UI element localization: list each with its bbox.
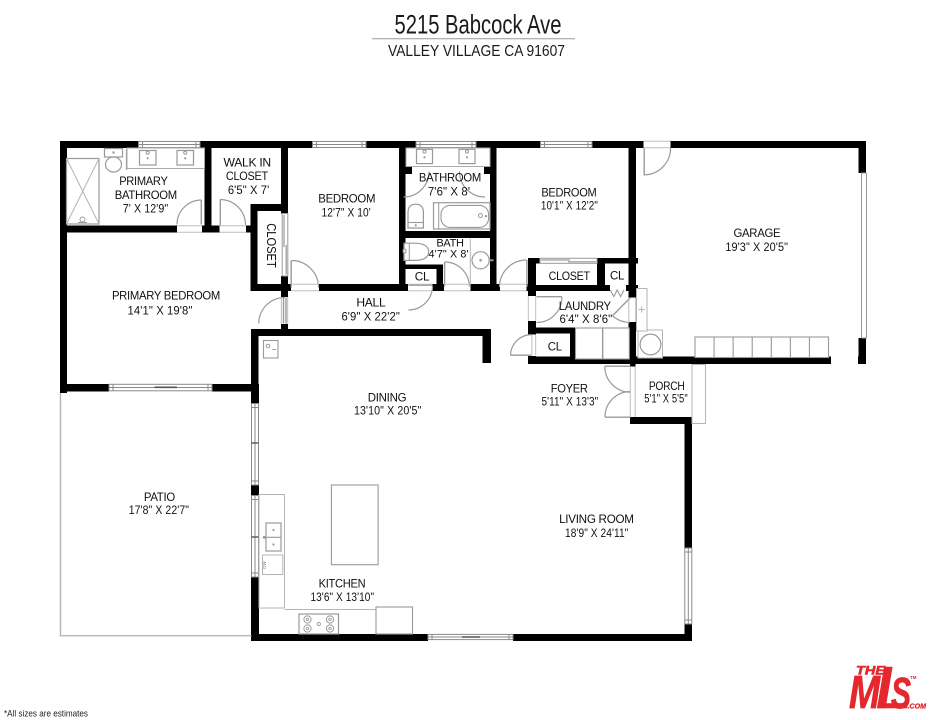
svg-text:BEDROOM: BEDROOM (318, 192, 375, 206)
svg-text:5'1" X 5'5": 5'1" X 5'5" (644, 393, 688, 405)
svg-text:S: S (891, 669, 911, 718)
svg-text:KITCHEN: KITCHEN (319, 577, 366, 591)
svg-text:BEDROOM: BEDROOM (541, 185, 596, 199)
svg-text:19'3" X 20'5": 19'3" X 20'5" (725, 242, 788, 254)
svg-text:5215 Babcock Ave: 5215 Babcock Ave (395, 10, 562, 40)
svg-text:14'1" X 19'8": 14'1" X 19'8" (128, 305, 193, 317)
svg-text:CLOSET: CLOSET (549, 271, 590, 283)
svg-text:6'9" X 22'2": 6'9" X 22'2" (341, 312, 400, 324)
svg-text:HALL: HALL (356, 296, 386, 310)
svg-text:7'6" X 8': 7'6" X 8' (428, 186, 470, 198)
svg-text:12'7" X 10': 12'7" X 10' (322, 208, 371, 220)
svg-text:CL: CL (548, 340, 563, 354)
svg-text:CL: CL (610, 270, 625, 282)
svg-text:7' X 12'9": 7' X 12'9" (123, 204, 169, 216)
svg-text:6'4" X 8'6": 6'4" X 8'6" (559, 314, 612, 326)
svg-text:TM: TM (910, 675, 917, 680)
svg-text:BATHROOM: BATHROOM (419, 170, 481, 184)
svg-text:FOYER: FOYER (551, 382, 589, 396)
svg-text:VALLEY VILLAGE CA 91607: VALLEY VILLAGE CA 91607 (388, 43, 565, 60)
svg-text:PRIMARY: PRIMARY (119, 174, 168, 188)
svg-text:4'7" X 8': 4'7" X 8' (429, 249, 469, 261)
svg-text:M: M (849, 666, 881, 718)
svg-text:PORCH: PORCH (649, 379, 685, 393)
svg-text:5'11" X 13'3": 5'11" X 13'3" (542, 396, 599, 408)
svg-text:13'6" X 13'10": 13'6" X 13'10" (310, 592, 374, 604)
svg-text:LIVING ROOM: LIVING ROOM (559, 512, 634, 526)
svg-text:13'10" X 20'5": 13'10" X 20'5" (354, 406, 421, 418)
svg-text:*All sizes are estimates: *All sizes are estimates (4, 709, 88, 720)
svg-text:18'9" X 24'11": 18'9" X 24'11" (565, 528, 628, 540)
svg-text:6'5" X 7': 6'5" X 7' (228, 185, 270, 197)
svg-text:WALK IN: WALK IN (224, 155, 271, 169)
svg-text:DINING: DINING (368, 391, 406, 405)
svg-text:DW: DW (262, 561, 267, 569)
svg-text:PRIMARY BEDROOM: PRIMARY BEDROOM (112, 288, 220, 302)
svg-text:10'1" X 12'2": 10'1" X 12'2" (541, 201, 598, 213)
svg-text:.COM: .COM (908, 701, 927, 710)
svg-text:CLOSET: CLOSET (264, 223, 278, 268)
svg-text:BATHROOM: BATHROOM (115, 188, 177, 202)
svg-text:LAUNDRY: LAUNDRY (559, 299, 611, 313)
svg-text:PATIO: PATIO (144, 490, 175, 504)
svg-text:GARAGE: GARAGE (733, 226, 780, 240)
svg-text:CL: CL (415, 270, 430, 284)
svg-text:CLOSET: CLOSET (226, 169, 269, 183)
svg-text:17'8" X 22'7": 17'8" X 22'7" (129, 505, 189, 517)
